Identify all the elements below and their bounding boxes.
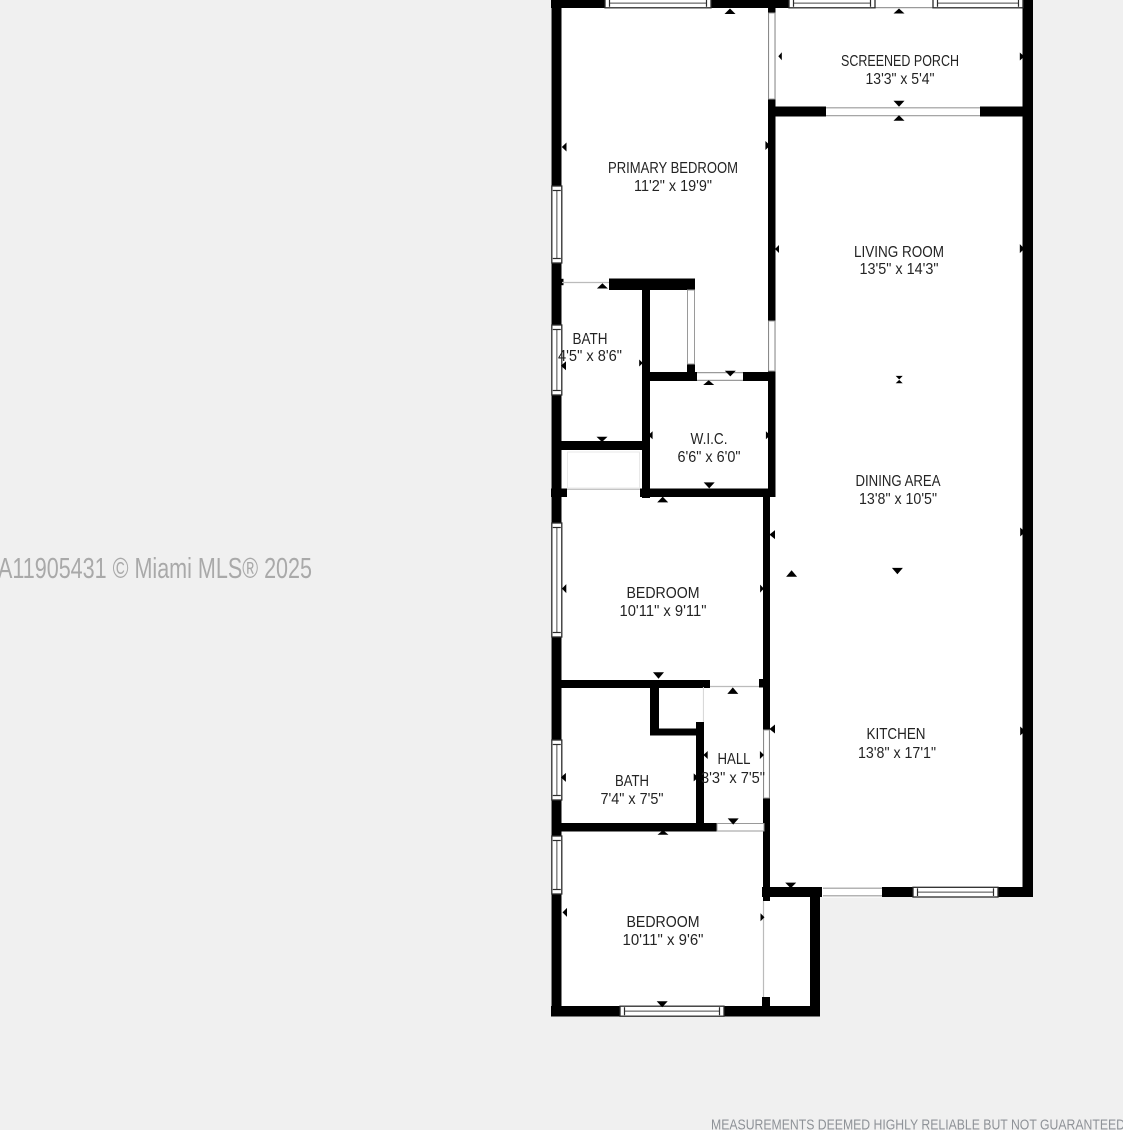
svg-text:13'3" x 5'4": 13'3" x 5'4" <box>866 71 935 88</box>
svg-text:BEDROOM: BEDROOM <box>627 585 700 602</box>
svg-text:BATH: BATH <box>573 331 608 348</box>
svg-text:LIVING ROOM: LIVING ROOM <box>854 244 944 261</box>
svg-text:4'5" x 8'6": 4'5" x 8'6" <box>558 348 622 365</box>
svg-text:13'5" x 14'3": 13'5" x 14'3" <box>860 261 939 278</box>
svg-text:7'4" x 7'5": 7'4" x 7'5" <box>601 791 664 808</box>
svg-text:A11905431 © Miami MLS® 2025: A11905431 © Miami MLS® 2025 <box>0 553 312 585</box>
svg-text:BATH: BATH <box>615 773 649 790</box>
svg-text:13'8" x 10'5": 13'8" x 10'5" <box>859 491 937 508</box>
svg-text:MEASUREMENTS DEEMED HIGHLY REL: MEASUREMENTS DEEMED HIGHLY RELIABLE BUT … <box>711 1117 1123 1130</box>
svg-text:KITCHEN: KITCHEN <box>867 726 926 743</box>
svg-text:11'2" x 19'9": 11'2" x 19'9" <box>634 178 712 195</box>
svg-text:DINING AREA: DINING AREA <box>856 473 942 490</box>
svg-text:10'11" x 9'11": 10'11" x 9'11" <box>620 603 707 620</box>
svg-text:10'11" x 9'6": 10'11" x 9'6" <box>623 932 704 949</box>
svg-text:W.I.C.: W.I.C. <box>691 431 728 448</box>
svg-text:3'3" x 7'5": 3'3" x 7'5" <box>701 770 765 787</box>
svg-text:13'8" x 17'1": 13'8" x 17'1" <box>858 745 936 762</box>
svg-text:6'6" x 6'0": 6'6" x 6'0" <box>678 449 741 466</box>
svg-text:PRIMARY BEDROOM: PRIMARY BEDROOM <box>608 160 738 177</box>
svg-text:BEDROOM: BEDROOM <box>627 914 700 931</box>
svg-text:HALL: HALL <box>718 751 751 768</box>
svg-text:SCREENED PORCH: SCREENED PORCH <box>841 53 959 70</box>
